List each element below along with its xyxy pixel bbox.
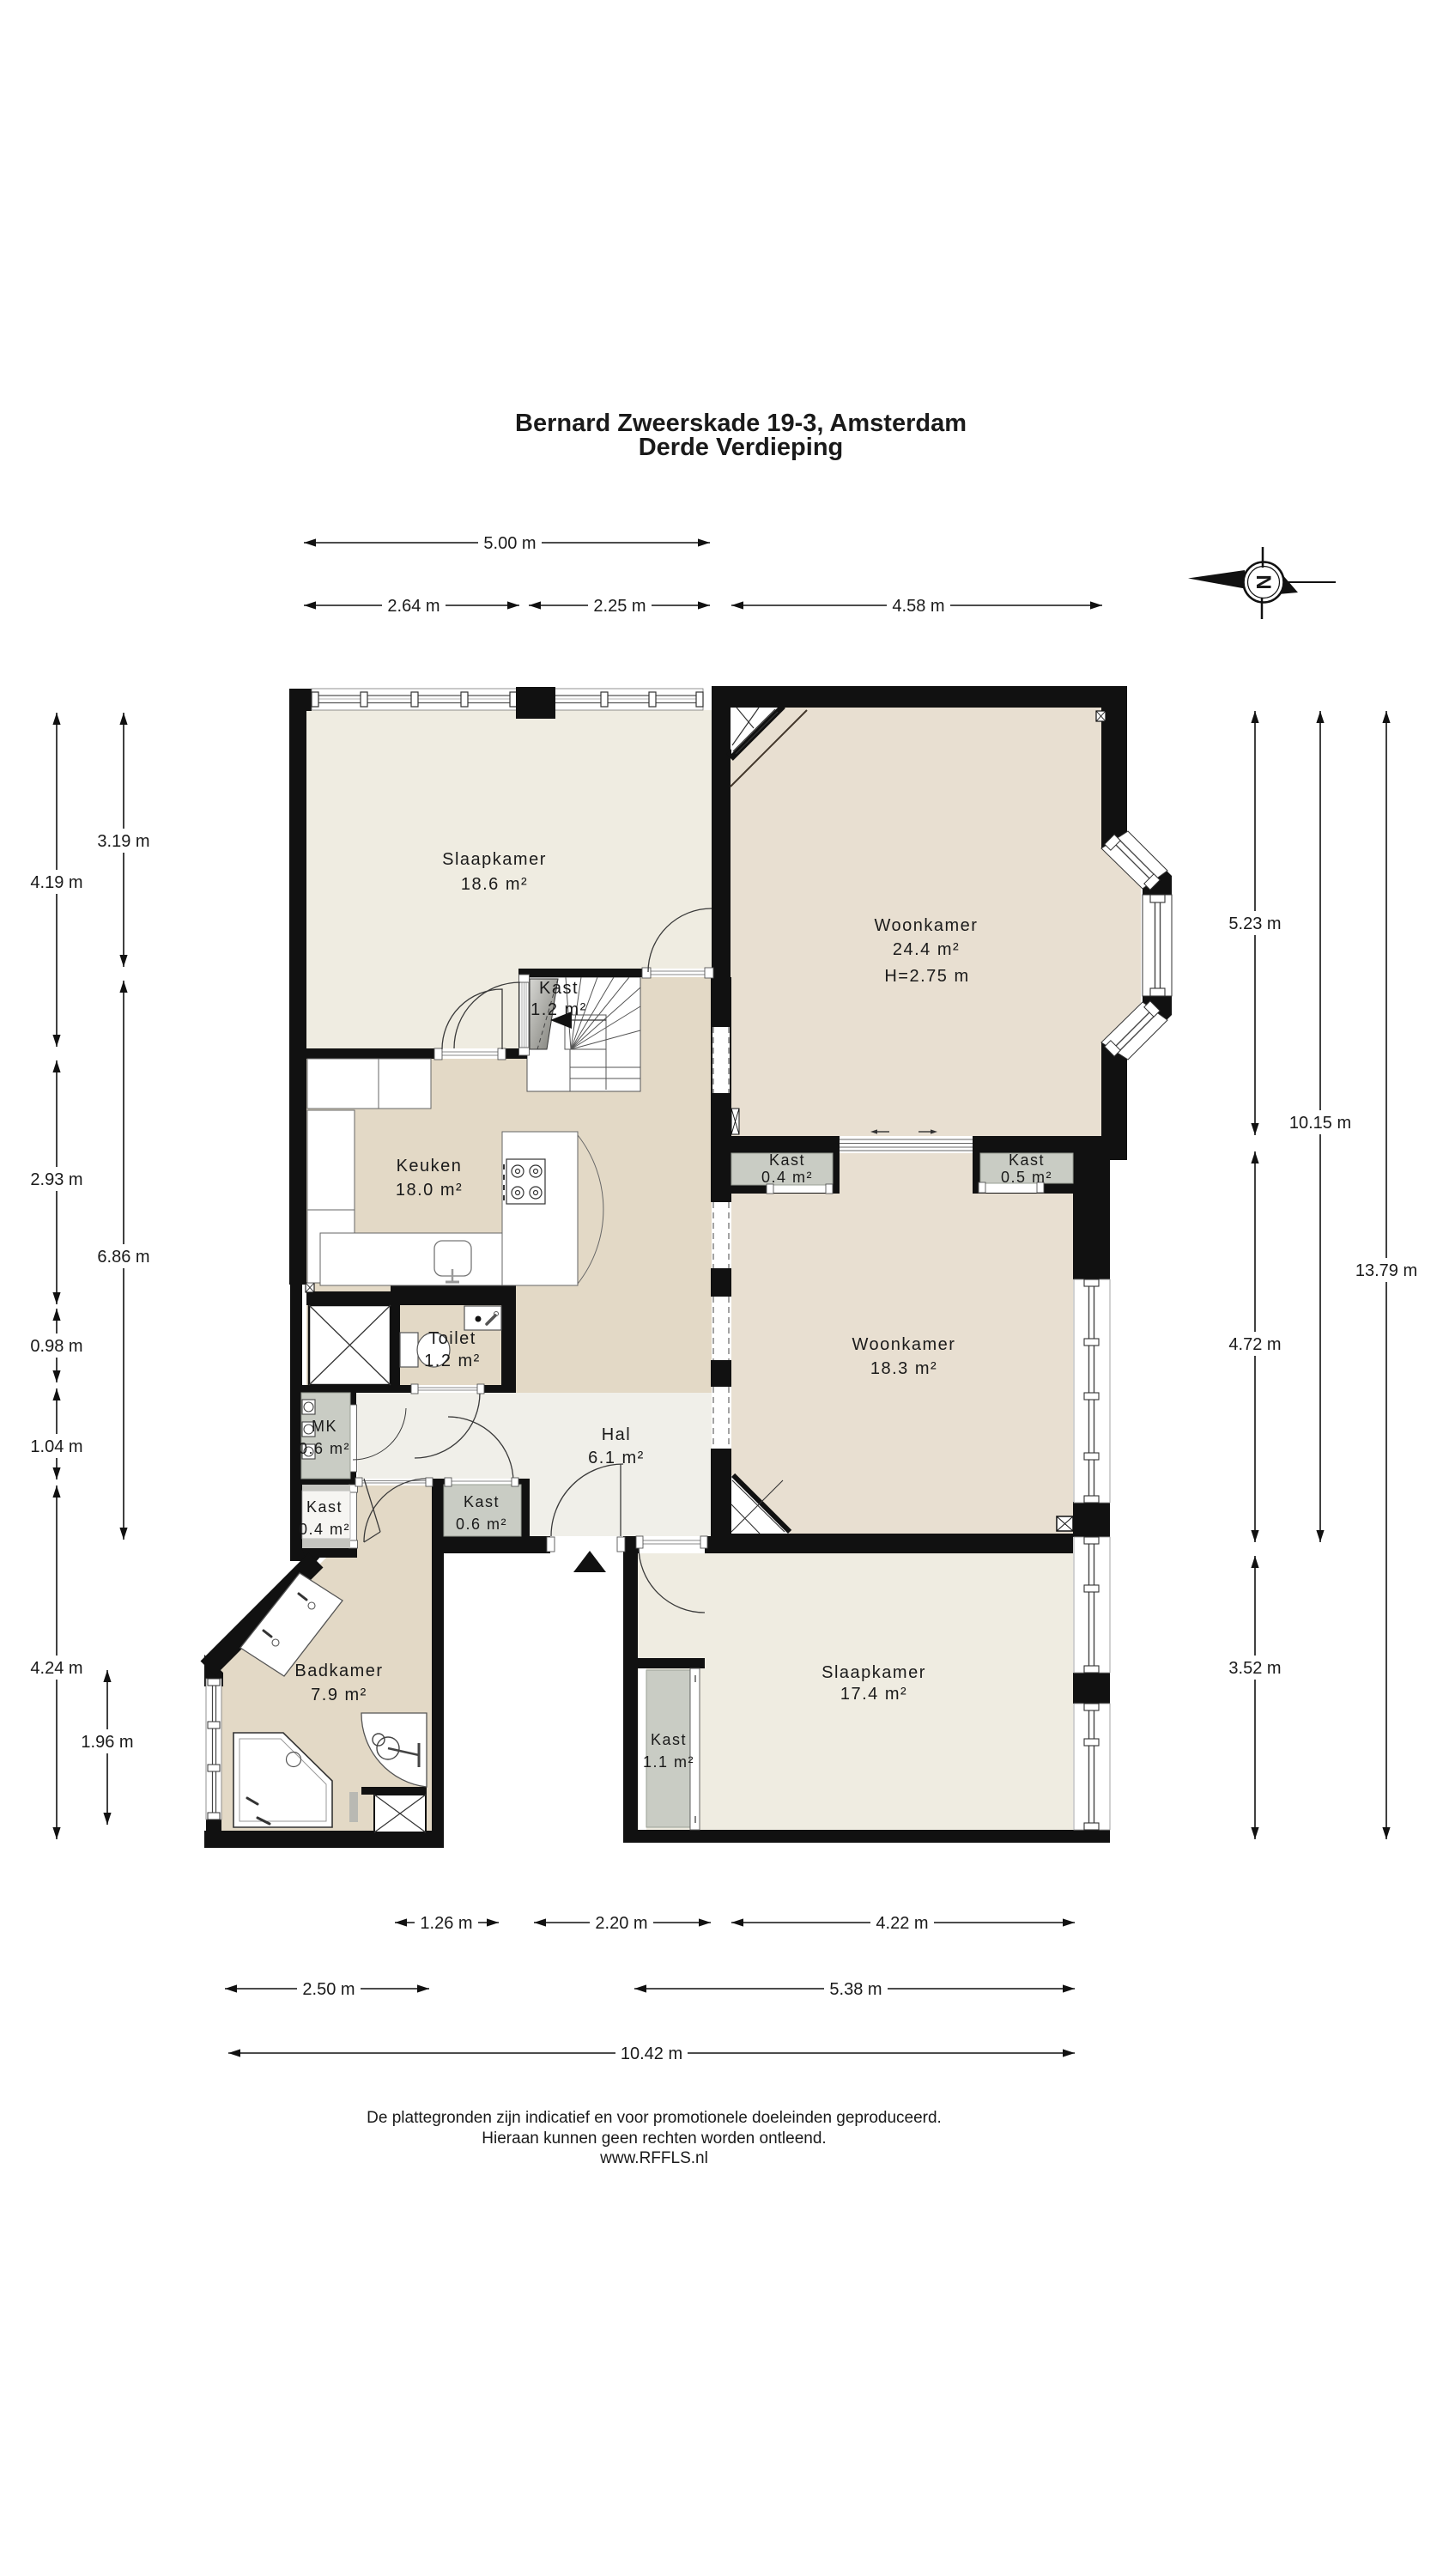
svg-text:5.38 m: 5.38 m	[829, 1980, 882, 1999]
svg-text:Derde Verdieping: Derde Verdieping	[639, 434, 844, 461]
svg-text:24.4 m²: 24.4 m²	[893, 940, 960, 959]
svg-text:1.2 m²: 1.2 m²	[424, 1352, 481, 1370]
svg-text:De plattegronden zijn indicati: De plattegronden zijn indicatief en voor…	[367, 2109, 942, 2127]
svg-text:5.00 m: 5.00 m	[483, 534, 536, 553]
svg-text:Hieraan kunnen geen rechten wo: Hieraan kunnen geen rechten worden ontle…	[482, 2129, 826, 2148]
svg-text:5.23 m: 5.23 m	[1228, 914, 1281, 933]
svg-text:4.22 m: 4.22 m	[876, 1914, 928, 1933]
svg-text:Kast: Kast	[651, 1731, 687, 1748]
svg-text:Slaapkamer: Slaapkamer	[442, 850, 547, 869]
svg-text:1.2 m²: 1.2 m²	[530, 1000, 587, 1019]
svg-text:Woonkamer: Woonkamer	[875, 916, 979, 935]
svg-text:6.86 m: 6.86 m	[97, 1248, 149, 1267]
svg-text:0.6 m²: 0.6 m²	[299, 1440, 350, 1457]
svg-text:0.98 m: 0.98 m	[30, 1337, 82, 1356]
svg-text:4.19 m: 4.19 m	[30, 873, 82, 892]
svg-text:3.52 m: 3.52 m	[1228, 1659, 1281, 1678]
svg-text:www.RFFLS.nl: www.RFFLS.nl	[599, 2149, 708, 2167]
svg-text:Badkamer: Badkamer	[294, 1662, 383, 1680]
svg-text:Slaapkamer: Slaapkamer	[822, 1663, 926, 1682]
svg-text:6.1 m²: 6.1 m²	[588, 1449, 645, 1467]
svg-text:1.1 m²: 1.1 m²	[643, 1753, 694, 1771]
svg-text:0.4 m²: 0.4 m²	[299, 1521, 350, 1538]
svg-text:Kast: Kast	[1009, 1151, 1045, 1169]
svg-text:Keuken: Keuken	[397, 1157, 463, 1176]
svg-text:10.42 m: 10.42 m	[621, 2044, 682, 2063]
svg-text:17.4 m²: 17.4 m²	[840, 1685, 907, 1704]
svg-text:4.58 m: 4.58 m	[892, 597, 944, 616]
svg-text:2.20 m: 2.20 m	[595, 1914, 647, 1933]
svg-text:Kast: Kast	[306, 1498, 343, 1516]
svg-text:4.72 m: 4.72 m	[1228, 1335, 1281, 1354]
svg-text:N: N	[1253, 574, 1276, 589]
svg-text:18.0 m²: 18.0 m²	[396, 1181, 463, 1200]
svg-text:4.24 m: 4.24 m	[30, 1659, 82, 1678]
svg-text:18.6 m²: 18.6 m²	[461, 875, 528, 894]
svg-text:1.26 m: 1.26 m	[420, 1914, 472, 1933]
svg-text:Kast: Kast	[464, 1493, 500, 1510]
svg-text:Toilet: Toilet	[428, 1329, 476, 1348]
svg-text:Woonkamer: Woonkamer	[852, 1335, 956, 1354]
svg-text:13.79 m: 13.79 m	[1355, 1261, 1417, 1280]
svg-text:0.6 m²: 0.6 m²	[456, 1516, 507, 1533]
svg-text:0.4 m²: 0.4 m²	[761, 1169, 813, 1186]
svg-text:2.64 m: 2.64 m	[387, 597, 440, 616]
svg-text:10.15 m: 10.15 m	[1289, 1114, 1351, 1133]
svg-text:2.93 m: 2.93 m	[30, 1170, 82, 1189]
svg-text:Kast: Kast	[539, 979, 579, 998]
svg-text:1.04 m: 1.04 m	[30, 1437, 82, 1456]
svg-text:1.96 m: 1.96 m	[81, 1733, 133, 1752]
svg-text:3.19 m: 3.19 m	[97, 832, 149, 851]
svg-text:0.5 m²: 0.5 m²	[1001, 1169, 1052, 1186]
svg-text:Kast: Kast	[769, 1151, 805, 1169]
svg-text:2.50 m: 2.50 m	[302, 1980, 355, 1999]
svg-text:MK: MK	[312, 1418, 337, 1435]
svg-text:7.9 m²: 7.9 m²	[311, 1686, 367, 1704]
svg-text:H=2.75 m: H=2.75 m	[884, 967, 969, 986]
svg-text:18.3 m²: 18.3 m²	[870, 1359, 937, 1378]
svg-text:Hal: Hal	[602, 1425, 632, 1444]
svg-text:2.25 m: 2.25 m	[593, 597, 646, 616]
